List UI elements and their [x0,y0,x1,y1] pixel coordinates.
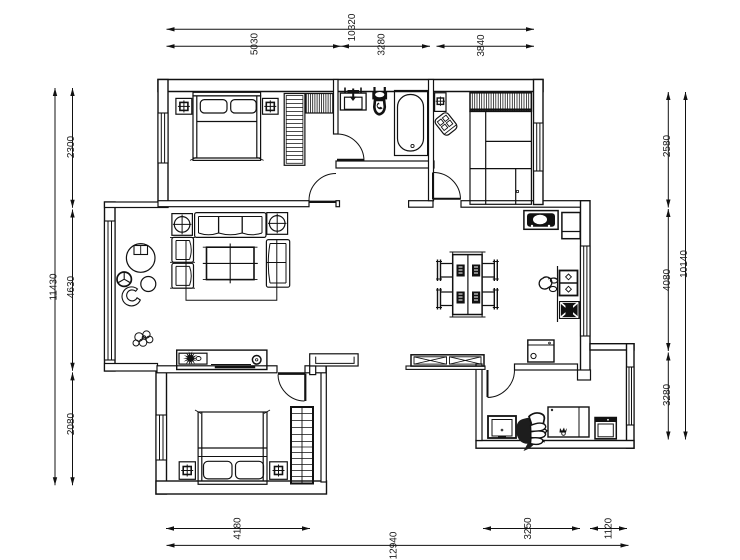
svg-text:5030: 5030 [250,32,261,55]
svg-text:2580: 2580 [662,134,673,157]
svg-text:4630: 4630 [66,275,77,298]
svg-text:4080: 4080 [662,268,673,291]
svg-text:1120: 1120 [604,517,615,539]
svg-text:12940: 12940 [389,531,400,559]
svg-text:3280: 3280 [377,33,388,56]
svg-text:2300: 2300 [66,135,77,158]
svg-text:3840: 3840 [476,34,487,57]
svg-text:3250: 3250 [523,517,534,540]
svg-text:11430: 11430 [49,273,60,301]
svg-text:3280: 3280 [662,383,673,406]
svg-text:10140: 10140 [679,250,690,278]
svg-text:2080: 2080 [66,412,77,435]
svg-text:10320: 10320 [347,13,358,41]
svg-text:4180: 4180 [233,517,244,540]
